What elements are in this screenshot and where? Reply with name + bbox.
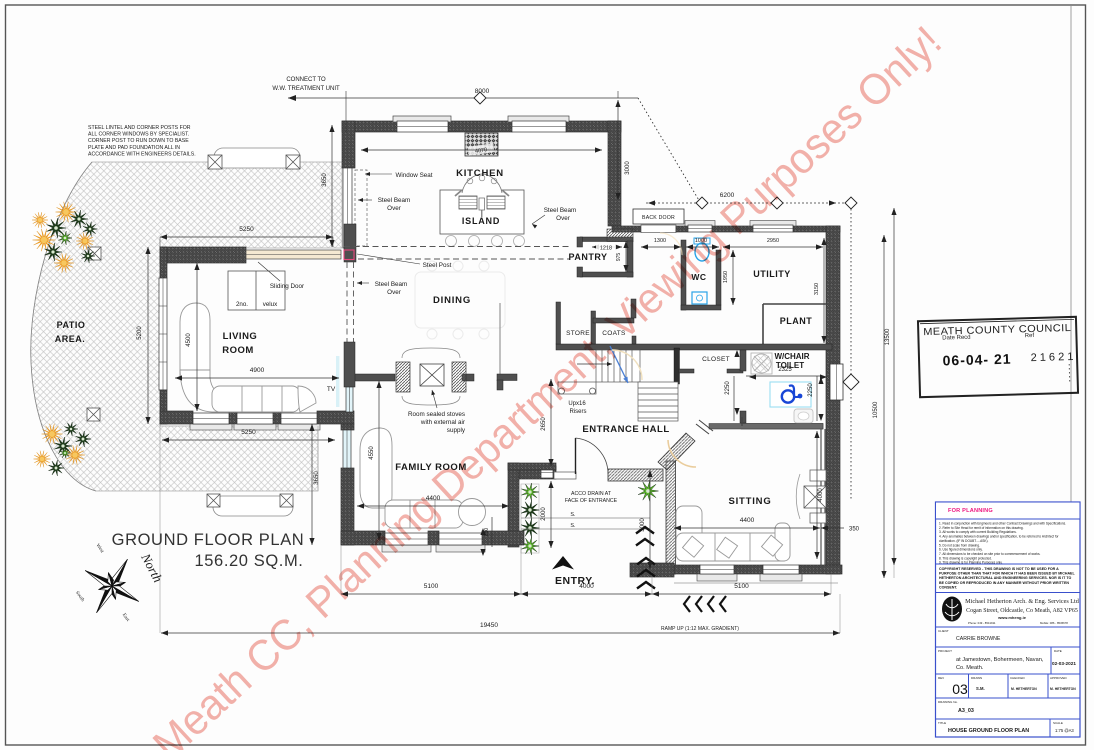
svg-text:2950: 2950: [767, 238, 779, 244]
svg-text:3000: 3000: [625, 161, 631, 175]
svg-text:PROJECT: PROJECT: [938, 649, 952, 653]
svg-text:CONNECT TO: CONNECT TO: [286, 77, 326, 83]
svg-text:KITCHEN: KITCHEN: [456, 168, 504, 179]
svg-text:2no.: 2no.: [236, 301, 248, 308]
svg-text:APPROVED: APPROVED: [1050, 676, 1068, 680]
svg-text:850: 850: [484, 528, 490, 537]
svg-text:3000: 3000: [640, 518, 646, 532]
svg-text:Room sealed stoves: Room sealed stoves: [408, 411, 465, 418]
svg-text:with external air: with external air: [420, 419, 465, 426]
svg-text:SITTING: SITTING: [728, 496, 771, 507]
svg-text:4000: 4000: [818, 488, 824, 502]
svg-text:2250: 2250: [808, 383, 814, 397]
svg-text:UTILITY: UTILITY: [753, 269, 791, 279]
svg-text:Steel Beam: Steel Beam: [375, 281, 408, 288]
svg-text:DATE: DATE: [1054, 649, 1062, 653]
svg-text:3650: 3650: [314, 471, 320, 485]
svg-text:BACK DOOR: BACK DOOR: [642, 215, 675, 221]
svg-text:3650: 3650: [322, 173, 328, 187]
svg-text:Window Seat: Window Seat: [395, 172, 432, 179]
svg-text:03: 03: [952, 681, 968, 697]
svg-text:ENTRY.: ENTRY.: [555, 575, 595, 587]
svg-text:PATIO: PATIO: [57, 320, 86, 330]
svg-text:4400: 4400: [740, 517, 755, 524]
svg-text:3150: 3150: [814, 283, 820, 295]
svg-text:M. HETHERTON: M. HETHERTON: [1011, 687, 1037, 691]
svg-text:COPYRIGHT RESERVED - THIS DRAW: COPYRIGHT RESERVED - THIS DRAWING IS NOT…: [939, 567, 1059, 571]
svg-text:4550: 4550: [369, 446, 375, 460]
svg-text:10500: 10500: [873, 401, 879, 418]
svg-text:ACCORDANCE WITH ENGINEERS DETA: ACCORDANCE WITH ENGINEERS DETAILS.: [88, 151, 196, 157]
svg-text:PLATE AND PAD FOUNDATION ALL I: PLATE AND PAD FOUNDATION ALL IN: [88, 145, 180, 151]
svg-text:DRAWN: DRAWN: [971, 676, 982, 680]
svg-text:Mobile: 086 - 8545678: Mobile: 086 - 8545678: [1040, 621, 1068, 625]
svg-text:ALL CORNER WINDOWS BY SPECIALI: ALL CORNER WINDOWS BY SPECIALIST.: [88, 132, 189, 138]
svg-text:CLOSET: CLOSET: [702, 356, 730, 363]
svg-text:HETHERTON ARCHITECTURAL AND EN: HETHERTON ARCHITECTURAL AND ENGINEERING …: [939, 576, 1071, 580]
svg-text:STEEL LINTEL AND CORNER POSTS: STEEL LINTEL AND CORNER POSTS FOR: [88, 125, 191, 131]
svg-text:FACE OF ENTRANCE: FACE OF ENTRANCE: [565, 498, 618, 504]
svg-text:975: 975: [616, 253, 622, 262]
svg-text:W.W. TREATMENT UNIT: W.W. TREATMENT UNIT: [272, 86, 340, 92]
svg-text:350: 350: [849, 527, 860, 533]
svg-text:Steel Beam: Steel Beam: [544, 207, 577, 214]
svg-text:S.M.: S.M.: [976, 686, 985, 691]
svg-text:5250: 5250: [241, 429, 256, 436]
svg-text:Over: Over: [387, 289, 401, 296]
svg-text:Over: Over: [387, 205, 401, 212]
svg-text:2000: 2000: [541, 507, 547, 521]
svg-text:CARRIE BROWNE: CARRIE BROWNE: [956, 636, 1001, 642]
svg-text:ISLAND: ISLAND: [462, 216, 500, 226]
svg-text:BE COPIED OR REPRODUCED IN ANY: BE COPIED OR REPRODUCED IN ANY MANNER WI…: [939, 581, 1069, 585]
svg-text:1218: 1218: [600, 246, 612, 252]
svg-text:PANTRY: PANTRY: [569, 252, 608, 262]
svg-text:S.: S.: [570, 523, 576, 529]
svg-text:www.mheng.ie: www.mheng.ie: [997, 615, 1027, 620]
svg-text:REV: REV: [938, 676, 944, 680]
svg-text:5100: 5100: [424, 583, 439, 590]
svg-text:2250: 2250: [725, 381, 731, 395]
svg-text:SCALE: SCALE: [1053, 721, 1063, 725]
svg-text:Michael Hetherton Arch. & Eng: Michael Hetherton Arch. & Eng. Services …: [965, 598, 1080, 605]
svg-text:1300: 1300: [654, 238, 666, 244]
svg-text:5200: 5200: [137, 326, 143, 340]
svg-text:1:75 @A3: 1:75 @A3: [1055, 728, 1074, 733]
svg-text:Risers: Risers: [569, 409, 586, 415]
svg-text:Ref: Ref: [1025, 333, 1035, 339]
svg-text:DINING: DINING: [433, 295, 471, 306]
svg-text:RAMP UP (1:12 MAX. GRADIEN: RAMP UP (1:12 MAX. GRADIENT): [661, 626, 739, 632]
svg-text:CORNER POST TO RUN DOWN TO BAS: CORNER POST TO RUN DOWN TO BASE: [88, 138, 189, 144]
svg-text:06-04- 21: 06-04- 21: [942, 351, 1011, 369]
svg-text:ROOM: ROOM: [222, 345, 254, 356]
svg-text:Co. Meath.: Co. Meath.: [956, 665, 984, 671]
svg-text:A3_03: A3_03: [958, 708, 974, 714]
svg-text:Over: Over: [556, 215, 570, 222]
svg-text:CONSENT.: CONSENT.: [939, 585, 957, 589]
svg-text:at Jamestown, Bohermeen, Navan: at Jamestown, Bohermeen, Navan,: [956, 657, 1044, 663]
svg-text:CHECKED: CHECKED: [1010, 676, 1026, 680]
svg-text:5250: 5250: [239, 226, 254, 233]
svg-text:TOILET: TOILET: [776, 361, 804, 370]
svg-text:Steel Post: Steel Post: [423, 262, 452, 269]
svg-text:Sliding Door: Sliding Door: [270, 283, 304, 290]
svg-text:M. HETHERTON: M. HETHERTON: [1050, 687, 1076, 691]
svg-text:19450: 19450: [480, 622, 498, 629]
svg-text:AREA.: AREA.: [55, 334, 86, 344]
svg-text:PURPOSE OTHER THAN THAT FOR WH: PURPOSE OTHER THAN THAT FOR WHICH IT HAS…: [939, 572, 1075, 576]
svg-text:supply: supply: [447, 427, 466, 434]
svg-text:02-03-2021: 02-03-2021: [1052, 661, 1076, 666]
svg-text:LIVING: LIVING: [223, 331, 258, 342]
svg-text:velux: velux: [263, 301, 278, 308]
svg-text:4900: 4900: [250, 367, 265, 374]
svg-text:TV: TV: [327, 386, 336, 393]
svg-text:Phone: 049 - 8541911: Phone: 049 - 8541911: [968, 621, 996, 625]
svg-text:4500: 4500: [186, 333, 192, 347]
svg-text:ENTRANCE HALL: ENTRANCE HALL: [582, 424, 669, 435]
svg-text:HOUSE GROUND FLOOR PLAN: HOUSE GROUND FLOOR PLAN: [948, 728, 1029, 734]
svg-text:GROUND FLOOR PLAN: GROUND FLOOR PLAN: [112, 531, 305, 549]
svg-text:CLIENT: CLIENT: [938, 629, 949, 633]
svg-text:Date Recd: Date Recd: [942, 335, 971, 342]
svg-text:Cogan Street, Oldcastle, Co Me: Cogan Street, Oldcastle, Co Meath, A82 V…: [966, 608, 1078, 614]
svg-text:1950: 1950: [723, 271, 729, 283]
svg-text:13500: 13500: [885, 328, 891, 345]
svg-text:ACCO DRAIN AT: ACCO DRAIN AT: [571, 491, 612, 497]
svg-text:S.: S.: [570, 512, 576, 518]
svg-text:5100: 5100: [734, 583, 749, 590]
svg-text:DRAWING No.: DRAWING No.: [938, 700, 958, 704]
svg-text:156.20 SQ.M.: 156.20 SQ.M.: [194, 552, 303, 570]
svg-text:FOR PLANNING: FOR PLANNING: [948, 508, 993, 514]
svg-text:PLANT: PLANT: [780, 316, 813, 326]
svg-text:W/CHAIR: W/CHAIR: [774, 352, 809, 361]
svg-text:2 1 6 2 1: 2 1 6 2 1: [1030, 351, 1073, 364]
svg-text:TITLE: TITLE: [938, 721, 946, 725]
svg-text:Steel Beam: Steel Beam: [378, 197, 411, 204]
